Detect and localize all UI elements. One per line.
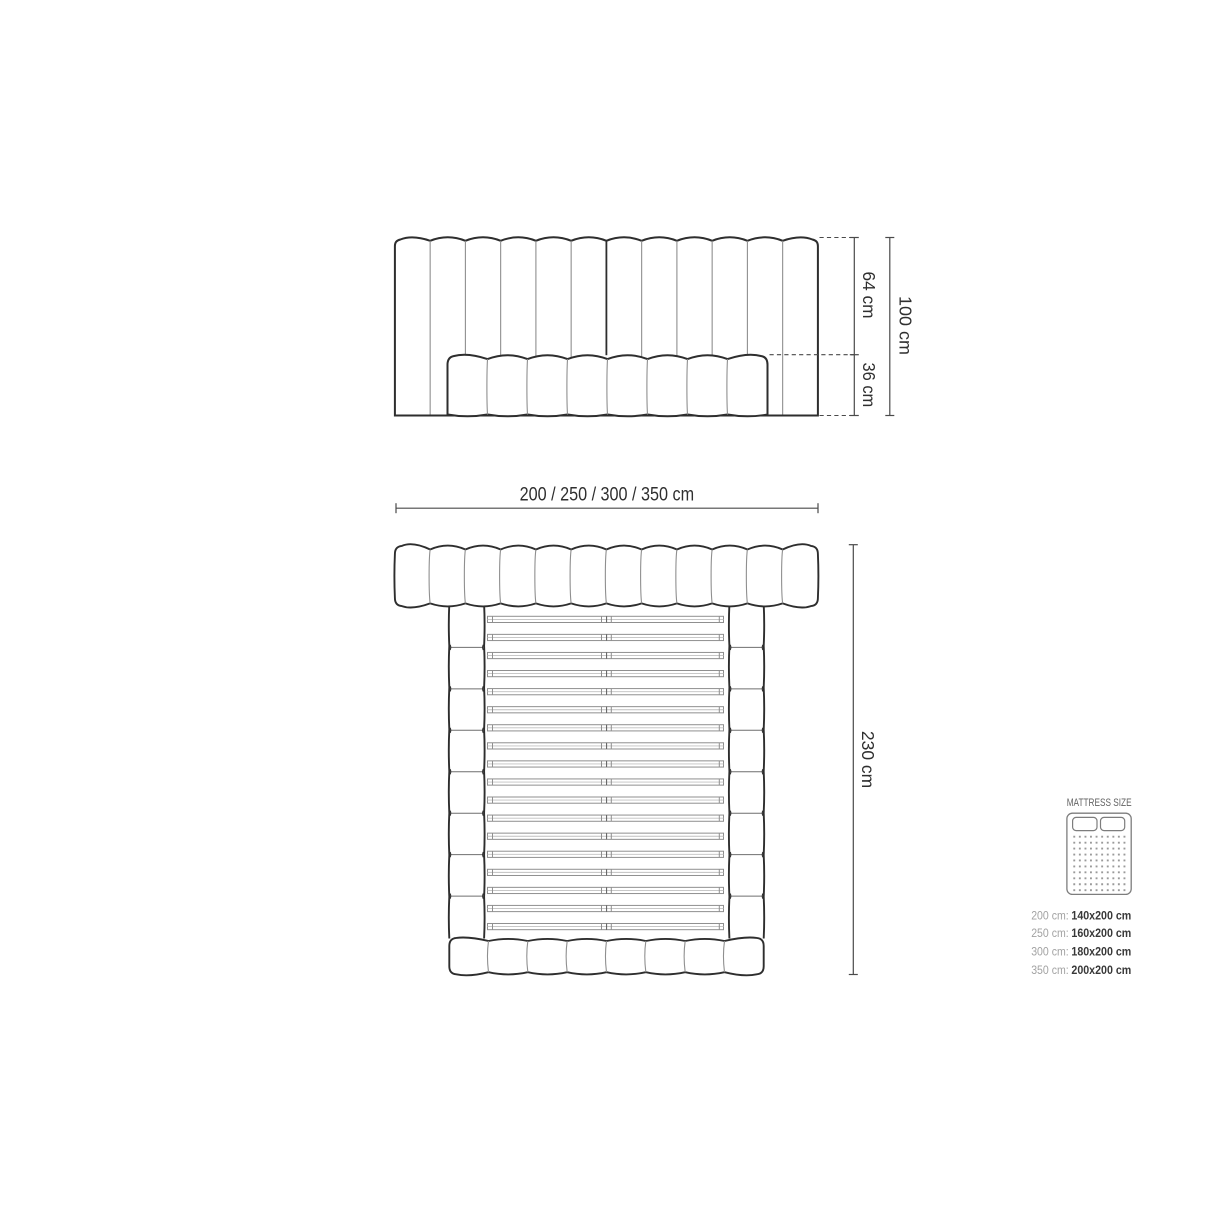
svg-text:300 cm:: 300 cm:: [1031, 945, 1069, 959]
svg-text:350 cm:: 350 cm:: [1031, 963, 1069, 977]
svg-text:64 cm: 64 cm: [859, 272, 879, 319]
svg-text:160x200 cm: 160x200 cm: [1071, 926, 1131, 940]
svg-text:36 cm: 36 cm: [859, 363, 879, 408]
svg-text:100 cm: 100 cm: [896, 296, 916, 355]
svg-text:200x200 cm: 200x200 cm: [1071, 963, 1131, 977]
svg-text:180x200 cm: 180x200 cm: [1071, 945, 1131, 959]
svg-text:250 cm:: 250 cm:: [1031, 926, 1069, 940]
svg-text:MATTRESS SIZE: MATTRESS SIZE: [1067, 797, 1132, 809]
svg-text:230 cm: 230 cm: [858, 731, 878, 788]
svg-text:200 cm:: 200 cm:: [1031, 908, 1069, 922]
svg-text:140x200 cm: 140x200 cm: [1071, 908, 1131, 922]
svg-text:200 / 250 / 300 / 350 cm: 200 / 250 / 300 / 350 cm: [520, 484, 695, 506]
